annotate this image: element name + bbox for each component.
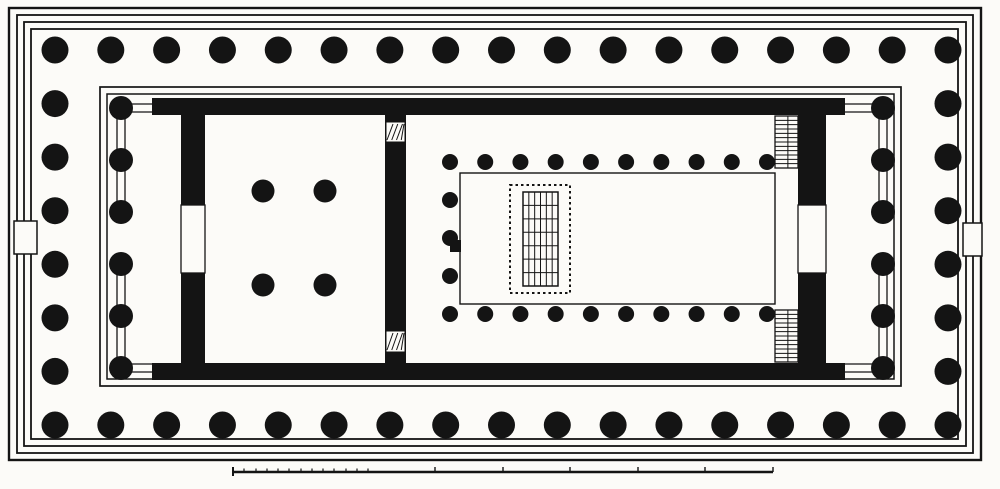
temple-plan-figure — [0, 0, 1000, 489]
east-great-door — [798, 205, 826, 273]
east-wall-upper — [798, 114, 826, 205]
door-openings — [181, 205, 826, 273]
statue-base — [510, 185, 570, 293]
temple-floor-plan-drawing — [0, 0, 1000, 489]
crepidoma-steps — [9, 8, 981, 460]
west-chamber-door — [181, 205, 205, 273]
west-porch-columns — [109, 96, 152, 380]
naos-colonnade — [442, 154, 775, 322]
east-porch-columns — [845, 96, 895, 380]
scale-bar — [233, 467, 773, 476]
north-cella-wall — [152, 98, 845, 115]
west-chamber-columns — [252, 180, 337, 297]
cella-walls — [152, 98, 845, 380]
east-wall-staircases — [775, 116, 798, 362]
naos-axial-block — [450, 240, 461, 252]
flank-edge-tabs — [14, 221, 982, 256]
cross-wall — [385, 114, 406, 364]
west-chamber-wall-lower — [181, 273, 205, 364]
south-cella-wall — [152, 363, 845, 380]
east-wall-lower — [798, 273, 826, 364]
west-chamber-wall-upper — [181, 114, 205, 205]
naos-floor-line — [460, 173, 775, 304]
